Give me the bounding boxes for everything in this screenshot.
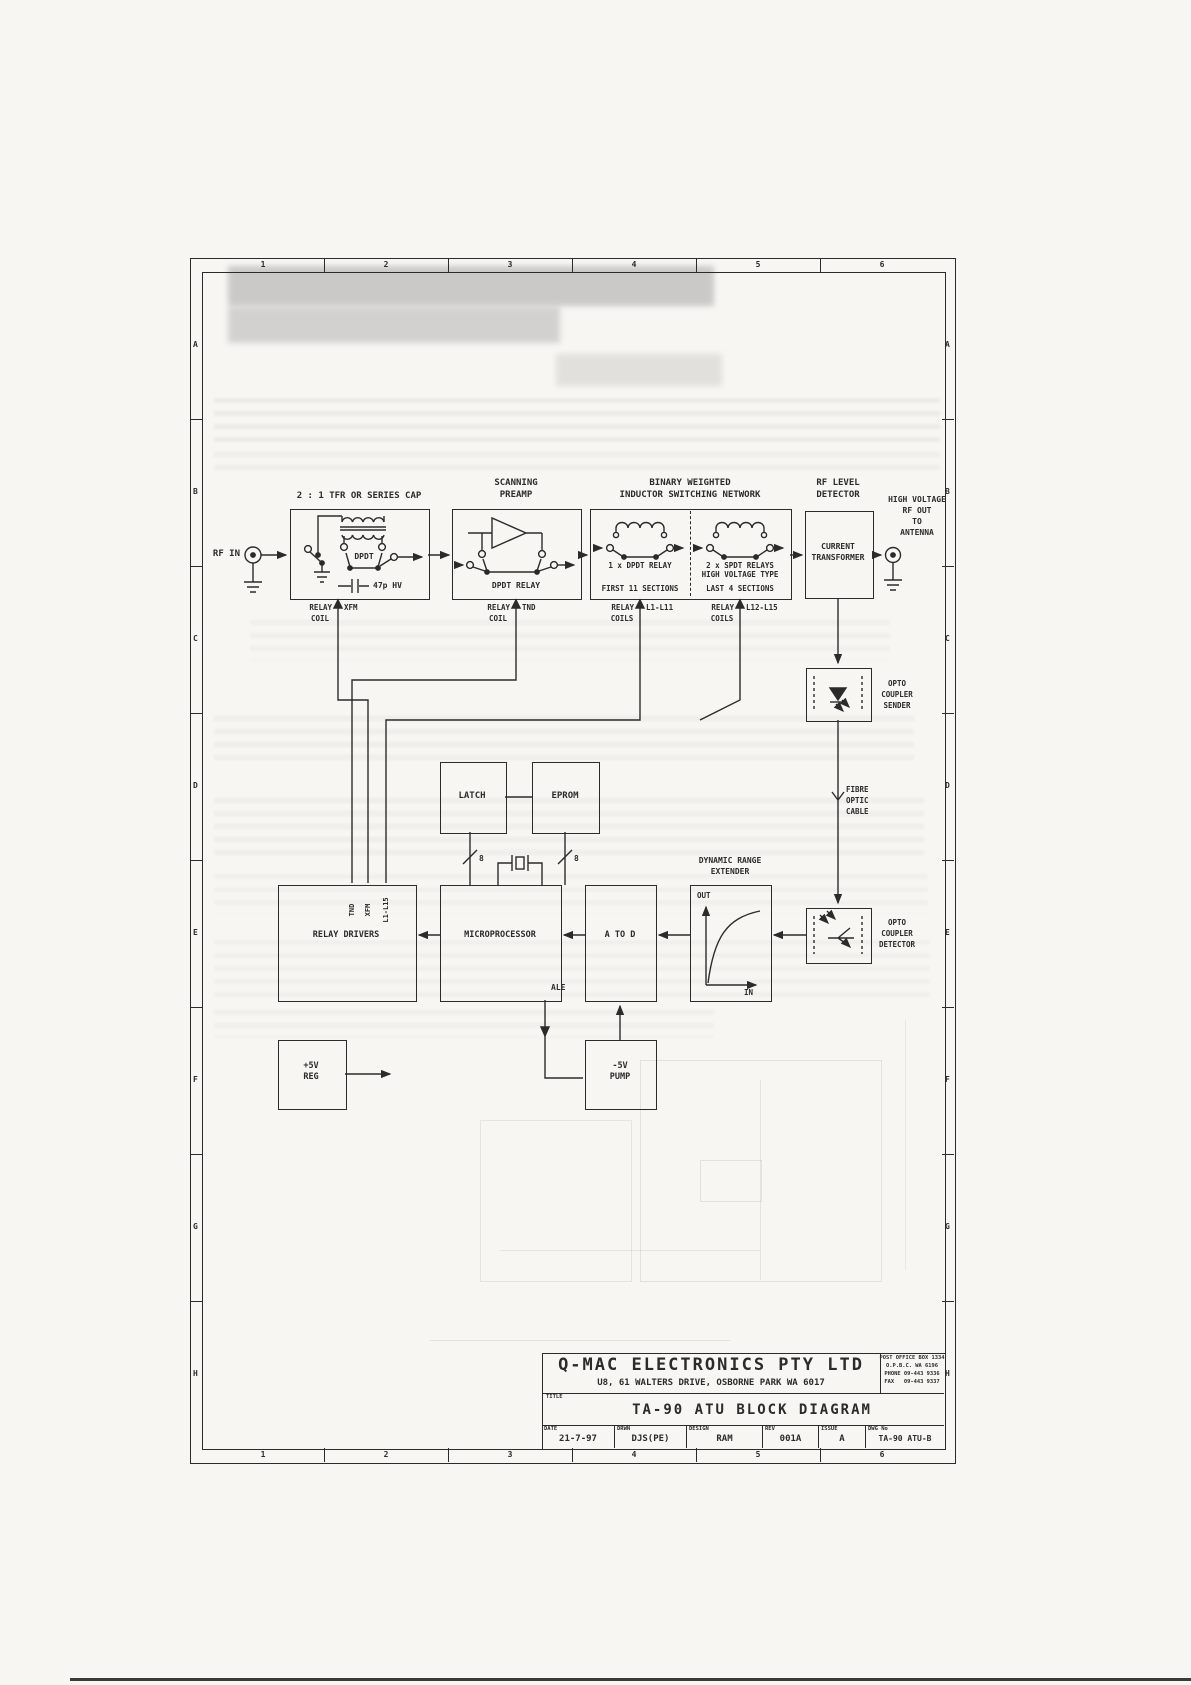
opto-sender-block bbox=[806, 668, 872, 722]
current-transformer-label: CURRENT bbox=[821, 543, 855, 551]
bus-width-label: 8 bbox=[479, 855, 484, 863]
bus-width-label: 8 bbox=[574, 855, 579, 863]
driver-input-text: L1-L15 bbox=[382, 897, 390, 922]
network-right-relay-label: HIGH VOLTAGE TYPE bbox=[702, 571, 779, 579]
scanned-schematic-page: 1 2 3 4 5 6 1 2 3 4 5 6 A B C D E F G H … bbox=[0, 0, 1191, 1685]
coil-label-l1: RELAY bbox=[590, 604, 634, 612]
field-label: DESIGN bbox=[689, 1426, 709, 1432]
input-stage-title: 2 : 1 TFR OR SERIES CAP bbox=[297, 492, 422, 501]
fibre-optic-label: OPTIC bbox=[846, 797, 869, 805]
network-right-relay-label: 2 x SPDT RELAYS bbox=[706, 562, 774, 570]
relay-drivers-label: RELAY DRIVERS bbox=[313, 931, 380, 940]
preamp-title: PREAMP bbox=[500, 491, 533, 500]
rf-level-detector-title: RF LEVEL bbox=[816, 479, 859, 488]
coil-label-l1: COILS bbox=[611, 615, 634, 623]
rf-out-label: RF OUT bbox=[903, 507, 932, 515]
ale-line bbox=[541, 1000, 583, 1078]
field-drwn: DRWN DJS(PE) bbox=[614, 1425, 686, 1448]
field-value: DJS(PE) bbox=[615, 1434, 686, 1444]
coil-label-xfm: XFM bbox=[344, 604, 358, 612]
field-label: DWG No bbox=[868, 1426, 888, 1432]
coil-label-tnd: RELAY bbox=[466, 604, 510, 612]
network-title: BINARY WEIGHTED bbox=[649, 479, 730, 488]
title-field-label: TITLE bbox=[546, 1395, 563, 1401]
drawing-title: TA-90 ATU BLOCK DIAGRAM bbox=[632, 1403, 872, 1417]
dre-axis-in: IN bbox=[744, 989, 753, 997]
opto-detector-label: COUPLER bbox=[881, 930, 913, 938]
pump-label: -5V bbox=[612, 1062, 627, 1071]
fibre-optic-label: CABLE bbox=[846, 808, 869, 816]
microprocessor-block bbox=[440, 885, 562, 1002]
preamp-title: SCANNING bbox=[494, 479, 537, 488]
coil-label-xfm: COIL bbox=[311, 615, 329, 623]
company-address: U8, 61 WALTERS DRIVE, OSBORNE PARK WA 60… bbox=[597, 1379, 825, 1388]
field-rev: REV 001A bbox=[762, 1425, 818, 1448]
network-right-sections-label: LAST 4 SECTIONS bbox=[706, 585, 774, 593]
coil-label-l1: L1-L11 bbox=[646, 604, 673, 612]
coil-label-l12: L12-L15 bbox=[746, 604, 778, 612]
driver-input-label-tnd: TND bbox=[345, 888, 359, 932]
a-to-d-label: A TO D bbox=[605, 931, 636, 940]
po-box-line: POST OFFICE BOX 1334 bbox=[880, 1356, 945, 1361]
rf-out-connector-icon bbox=[884, 548, 902, 591]
dre-title: EXTENDER bbox=[711, 868, 750, 876]
a-to-d-block bbox=[585, 885, 657, 1002]
coil-label-tnd: TND bbox=[522, 604, 536, 612]
driver-input-label-xfm: XFM bbox=[361, 888, 375, 932]
field-label: REV bbox=[765, 1426, 775, 1432]
opto-detector-block bbox=[806, 908, 872, 964]
opto-sender-label: COUPLER bbox=[881, 691, 913, 699]
po-box-line: O.P.B.C. WA 6196 bbox=[886, 1364, 938, 1369]
opto-sender-label: OPTO bbox=[888, 680, 906, 688]
field-value: A bbox=[819, 1434, 865, 1444]
company-name: Q-MAC ELECTRONICS PTY LTD bbox=[558, 1357, 864, 1374]
opto-detector-label: DETECTOR bbox=[879, 941, 915, 949]
latch-label: LATCH bbox=[458, 792, 485, 801]
driver-input-text: XFM bbox=[364, 904, 372, 917]
rf-out-label: TO bbox=[912, 518, 922, 526]
field-label: ISSUE bbox=[821, 1426, 838, 1432]
field-label: DATE bbox=[544, 1426, 557, 1432]
dre-title: DYNAMIC RANGE bbox=[699, 857, 762, 865]
dynamic-range-extender-block bbox=[690, 885, 772, 1002]
dpdt-label: DPDT bbox=[354, 553, 373, 561]
opto-detector-label: OPTO bbox=[888, 919, 906, 927]
network-left-relay-label: 1 x DPDT RELAY bbox=[608, 562, 671, 570]
field-value: RAM bbox=[687, 1434, 762, 1444]
dpdt-relay-label: DPDT RELAY bbox=[492, 582, 540, 590]
driver-input-text: TND bbox=[348, 904, 356, 917]
relay-coil-lines bbox=[334, 600, 744, 883]
current-transformer-label: TRANSFORMER bbox=[812, 554, 865, 562]
rf-in-label: RF IN bbox=[200, 550, 240, 559]
reg-label: +5V bbox=[303, 1062, 318, 1071]
network-left-sections-label: FIRST 11 SECTIONS bbox=[602, 585, 679, 593]
field-dwg-no: DWG No TA-90 ATU-B bbox=[865, 1425, 944, 1448]
rf-out-label: HIGH VOLTAGE bbox=[888, 496, 946, 504]
coil-label-l12: RELAY bbox=[690, 604, 734, 612]
network-title: INDUCTOR SWITCHING NETWORK bbox=[620, 491, 761, 500]
coil-label-xfm: RELAY bbox=[288, 604, 332, 612]
po-box-line: PHONE 09-443 9336 bbox=[884, 1372, 939, 1377]
coil-label-l12: COILS bbox=[711, 615, 734, 623]
field-label: DRWN bbox=[617, 1426, 630, 1432]
dre-axis-out: OUT bbox=[697, 892, 711, 900]
field-value: 21-7-97 bbox=[542, 1434, 614, 1444]
driver-input-label-l1-l15: L1-L15 bbox=[379, 888, 393, 932]
opto-sender-label: SENDER bbox=[883, 702, 910, 710]
title-block-fields-row: DATE 21-7-97 DRWN DJS(PE) DESIGN RAM REV… bbox=[542, 1425, 944, 1448]
field-value: 001A bbox=[763, 1434, 818, 1444]
field-issue: ISSUE A bbox=[818, 1425, 865, 1448]
fibre-optic-label: FIBRE bbox=[846, 786, 869, 794]
field-date: DATE 21-7-97 bbox=[542, 1425, 614, 1448]
eprom-label: EPROM bbox=[551, 792, 578, 801]
crystal-icon bbox=[498, 855, 542, 885]
cap-value-label: 47p HV bbox=[373, 582, 402, 590]
po-box-line: FAX 09-443 9337 bbox=[884, 1380, 939, 1385]
rf-level-detector-title: DETECTOR bbox=[816, 491, 859, 500]
reg-label: REG bbox=[303, 1073, 318, 1082]
pump-label: PUMP bbox=[610, 1073, 630, 1082]
field-design: DESIGN RAM bbox=[686, 1425, 762, 1448]
ale-label: ALE bbox=[551, 984, 565, 992]
rf-in-connector-icon bbox=[244, 547, 262, 592]
microprocessor-label: MICROPROCESSOR bbox=[464, 931, 536, 940]
field-value: TA-90 ATU-B bbox=[866, 1434, 944, 1443]
coil-label-tnd: COIL bbox=[489, 615, 507, 623]
rf-out-label: ANTENNA bbox=[900, 529, 934, 537]
